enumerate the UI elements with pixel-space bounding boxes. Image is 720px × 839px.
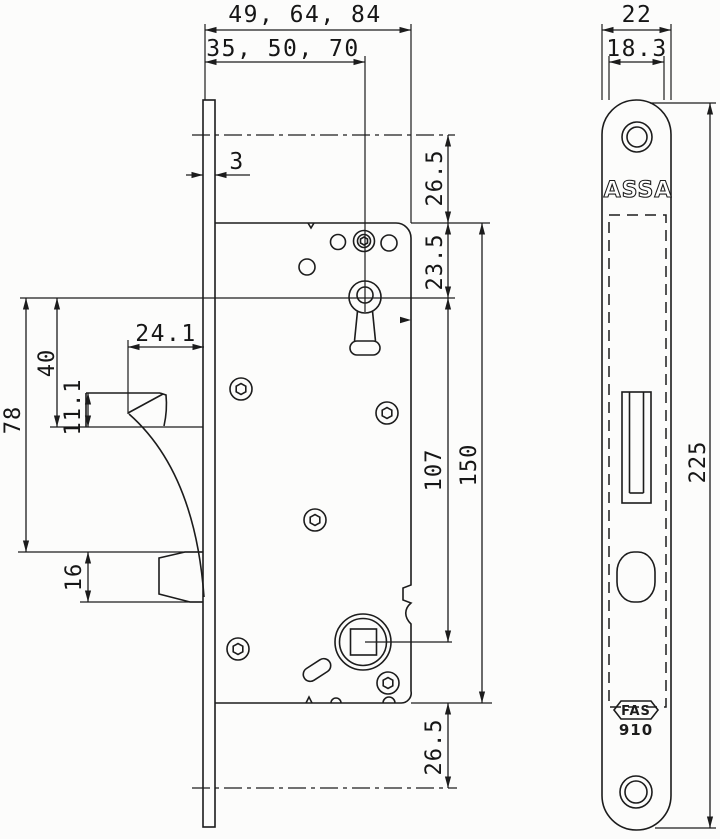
- torx-screw: [304, 509, 326, 531]
- dim-40: 40: [35, 349, 60, 378]
- fixing-screw: [354, 231, 375, 252]
- faceplate-screw-hole-top: [622, 122, 652, 152]
- faceplate-strip-side: [203, 100, 215, 827]
- dim-78: 78: [1, 406, 26, 435]
- angled-slot: [301, 656, 334, 684]
- fas-logo-text: FAS: [621, 704, 651, 719]
- dim-bottom-26-5: 26.5: [422, 719, 447, 776]
- edge-reference-arrow: [400, 317, 411, 323]
- follower-hub: [335, 614, 452, 670]
- cylinder-cutout: [617, 552, 655, 602]
- torx-screw: [376, 402, 398, 424]
- dim-150: 150: [457, 444, 482, 487]
- brand-label: ASSA: [604, 178, 673, 203]
- lock-dimension-drawing: 49, 64, 84 35, 50, 70 3 26.5 23.5 24.1 4…: [0, 0, 720, 839]
- bottom-edge-spike-notch: [306, 697, 312, 703]
- dim-16: 16: [62, 563, 87, 592]
- dim-11-1: 11.1: [61, 379, 86, 436]
- latch-cutout: [622, 392, 651, 503]
- technical-drawing-page: 49, 64, 84 35, 50, 70 3 26.5 23.5 24.1 4…: [0, 0, 720, 839]
- faceplate-screw-hole-bottom: [620, 776, 652, 808]
- case-hole: [331, 235, 346, 250]
- case-hole: [381, 235, 397, 251]
- model-number: 910: [619, 721, 653, 739]
- latch-bolt: [159, 552, 203, 602]
- bottom-edge-halfround-notch: [383, 697, 395, 703]
- dim-top-26-5: 26.5: [423, 150, 448, 207]
- dim-backset-inner: 35, 50, 70: [206, 36, 359, 62]
- dim-24-1: 24.1: [135, 321, 196, 347]
- lock-case-outline: [215, 223, 411, 703]
- torx-screw: [377, 672, 399, 694]
- torx-screw: [230, 378, 252, 400]
- dim-plate-height: 225: [686, 441, 711, 484]
- fas-logo-badge: FAS: [614, 701, 658, 719]
- lock-case-view: 49, 64, 84 35, 50, 70 3 26.5 23.5 24.1 4…: [1, 2, 492, 827]
- hook-deadbolt: [86, 393, 204, 597]
- dim-plate-thickness: 3: [229, 149, 244, 175]
- dim-107: 107: [422, 449, 447, 492]
- dim-backset-outer: 49, 64, 84: [228, 2, 381, 28]
- hidden-case-rect: [609, 215, 666, 707]
- dim-plate-width: 22: [622, 2, 653, 28]
- dim-23-5: 23.5: [423, 234, 448, 291]
- case-hole: [299, 259, 315, 275]
- faceplate-view: ASSA FAS 910 22 18.3 225: [602, 2, 716, 830]
- torx-screw: [227, 638, 249, 660]
- dim-cutout-width: 18.3: [606, 36, 667, 62]
